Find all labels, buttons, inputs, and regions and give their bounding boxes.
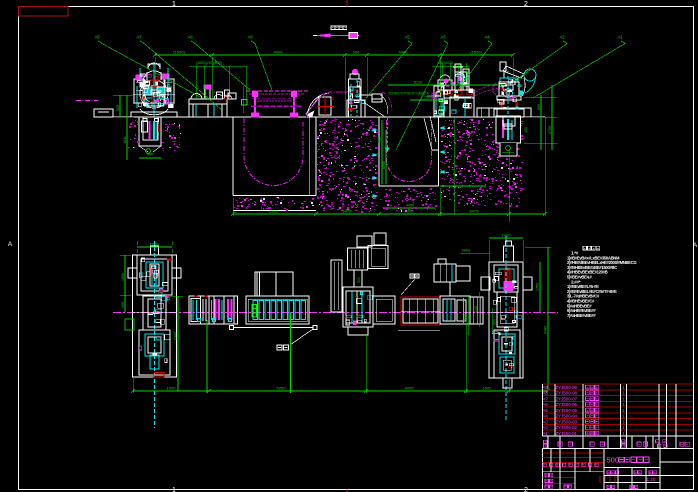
svg-text:5250: 5250 [277,386,287,391]
svg-text:A1: A1 [543,431,549,436]
svg-text:ZYJ500-02: ZYJ500-02 [556,425,578,430]
svg-text:1140: 1140 [474,306,478,314]
svg-text:ZYJ500-04: ZYJ500-04 [556,414,578,419]
svg-text:(960): (960) [462,249,470,253]
svg-text:4000: 4000 [274,50,284,55]
svg-text:-2100: -2100 [268,209,279,214]
svg-text:1520: 1520 [464,314,468,322]
svg-text:A: A [8,241,13,248]
svg-text:A3: A3 [543,419,549,424]
svg-text:A8: A8 [187,35,193,40]
svg-text:525: 525 [116,105,120,111]
svg-text:(1500): (1500) [470,50,482,55]
svg-text:1650: 1650 [121,273,125,281]
svg-text:A5: A5 [543,408,549,413]
svg-text:7)#aHBE#vBE##: 7)#aHBE#vBE## [567,313,596,318]
svg-text:ZYJ500-03: ZYJ500-03 [556,419,578,424]
svg-text:4400: 4400 [406,204,414,208]
svg-text:500: 500 [353,50,360,55]
svg-text:A: A [693,242,698,249]
svg-text:A4: A4 [484,35,490,40]
svg-text:A7: A7 [136,35,142,40]
svg-text:1:20: 1:20 [647,477,656,482]
svg-text:ZYJ500-01: ZYJ500-01 [556,431,578,436]
svg-text:A2: A2 [543,425,549,430]
svg-text:1700: 1700 [382,161,386,169]
svg-text:1400: 1400 [502,233,512,238]
svg-text:2: 2 [524,1,528,8]
svg-text:950: 950 [493,319,497,325]
svg-text:6000: 6000 [405,209,415,214]
svg-text:A9: A9 [543,385,549,390]
svg-text:A7: A7 [543,397,549,402]
svg-text:6475: 6475 [470,209,480,214]
svg-text:A4: A4 [543,414,549,419]
svg-text:A6: A6 [94,35,100,40]
svg-text:3480: 3480 [544,326,548,334]
svg-text:4005: 4005 [405,386,415,391]
svg-text:1750: 1750 [548,126,552,134]
svg-text:A5: A5 [404,35,410,40]
svg-text:1200: 1200 [150,242,160,247]
svg-text:450: 450 [121,302,125,308]
svg-text:1500: 1500 [424,96,432,100]
svg-text:2: 2 [524,487,528,492]
svg-text:950: 950 [147,153,153,157]
svg-text:1: 1 [172,1,176,8]
svg-text:ZYJ500-07: ZYJ500-07 [556,397,578,402]
svg-text:6475: 6475 [343,209,353,214]
svg-text:800: 800 [537,104,541,110]
svg-text:A2: A2 [559,35,565,40]
svg-text:500: 500 [357,277,361,283]
svg-text:A3: A3 [440,35,446,40]
svg-text:ZYJ500-05: ZYJ500-05 [556,408,578,413]
svg-text:ZYJ500-08: ZYJ500-08 [556,391,578,396]
svg-text:700: 700 [378,137,382,143]
svg-text:A8: A8 [543,391,549,396]
svg-text:2300: 2300 [174,332,178,340]
svg-text:A1: A1 [617,35,623,40]
svg-text:A6: A6 [543,402,549,407]
svg-text:1750: 1750 [536,283,540,291]
svg-text:5110: 5110 [414,80,423,85]
svg-text:ZYJ500-09: ZYJ500-09 [556,385,578,390]
svg-text:(1500): (1500) [173,50,185,55]
svg-text:1: 1 [172,487,176,492]
svg-text:ZYJ500-06: ZYJ500-06 [556,402,578,407]
svg-text:A9: A9 [247,35,253,40]
svg-text:1500: 1500 [483,386,493,391]
svg-text:450: 450 [524,127,528,133]
svg-text:1011: 1011 [123,136,127,144]
svg-text:1920: 1920 [167,386,177,391]
svg-text:500: 500 [607,456,620,465]
